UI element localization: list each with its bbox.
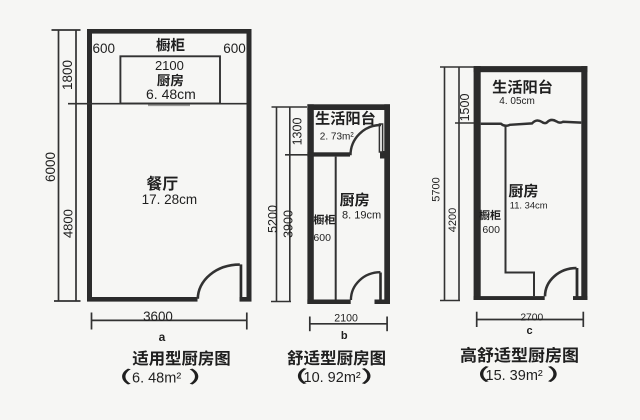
svg-text:a: a xyxy=(159,330,166,344)
svg-text:5200: 5200 xyxy=(266,205,280,233)
svg-text:6. 48m²: 6. 48m² xyxy=(132,371,181,387)
svg-text:11. 34cm: 11. 34cm xyxy=(510,199,548,210)
svg-text:2100: 2100 xyxy=(155,58,184,73)
svg-text:c: c xyxy=(527,325,533,337)
svg-text:6. 48cm: 6. 48cm xyxy=(146,86,196,102)
svg-text:1300: 1300 xyxy=(291,118,305,146)
svg-text:600: 600 xyxy=(93,41,116,56)
svg-text:b: b xyxy=(341,330,348,342)
svg-text:600: 600 xyxy=(482,224,500,236)
svg-text:5700: 5700 xyxy=(431,177,443,201)
svg-text:2100: 2100 xyxy=(334,312,358,324)
svg-text:4800: 4800 xyxy=(61,209,76,238)
svg-text:3600: 3600 xyxy=(143,309,173,324)
svg-text:6000: 6000 xyxy=(43,152,58,182)
svg-text:3900: 3900 xyxy=(282,210,296,238)
svg-text:10. 92m²: 10. 92m² xyxy=(304,370,361,386)
svg-text:2700: 2700 xyxy=(520,313,543,324)
svg-text:8. 19cm: 8. 19cm xyxy=(342,210,381,222)
svg-text:17. 28cm: 17. 28cm xyxy=(142,192,198,207)
svg-text:4. 05cm: 4. 05cm xyxy=(499,96,535,107)
svg-text:4200: 4200 xyxy=(447,208,459,232)
svg-text:1500: 1500 xyxy=(458,94,472,122)
svg-text:1800: 1800 xyxy=(60,60,75,90)
svg-text:600: 600 xyxy=(223,41,246,56)
svg-text:600: 600 xyxy=(313,232,331,244)
svg-text:15. 39m²: 15. 39m² xyxy=(486,368,543,384)
svg-text:2. 73m²: 2. 73m² xyxy=(320,131,355,142)
